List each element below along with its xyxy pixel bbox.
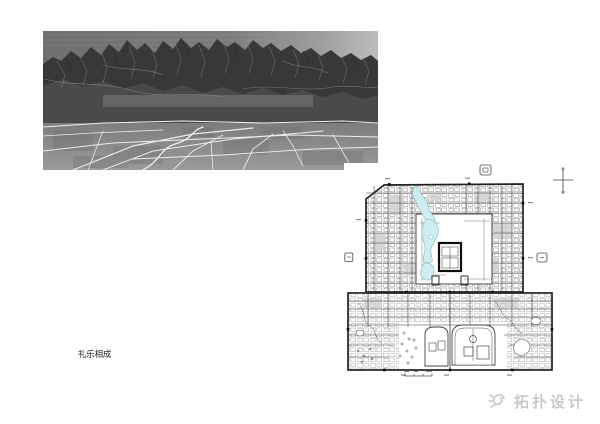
watermark: 拓扑设计 <box>487 390 586 412</box>
bird-logo-icon <box>487 390 511 412</box>
valley-haze <box>103 95 313 107</box>
page: 礼乐相成 拓扑设计 <box>0 0 600 424</box>
city-map-figure <box>344 163 584 380</box>
watermark-text: 拓扑设计 <box>514 391 586 412</box>
xiannongtan <box>425 327 448 366</box>
aerial-photo <box>43 31 378 170</box>
caption-text: 礼乐相成 <box>78 348 111 360</box>
temple-of-heaven <box>452 325 495 365</box>
old-beijing-map <box>344 163 584 380</box>
aerial-photo-figure <box>43 31 378 170</box>
